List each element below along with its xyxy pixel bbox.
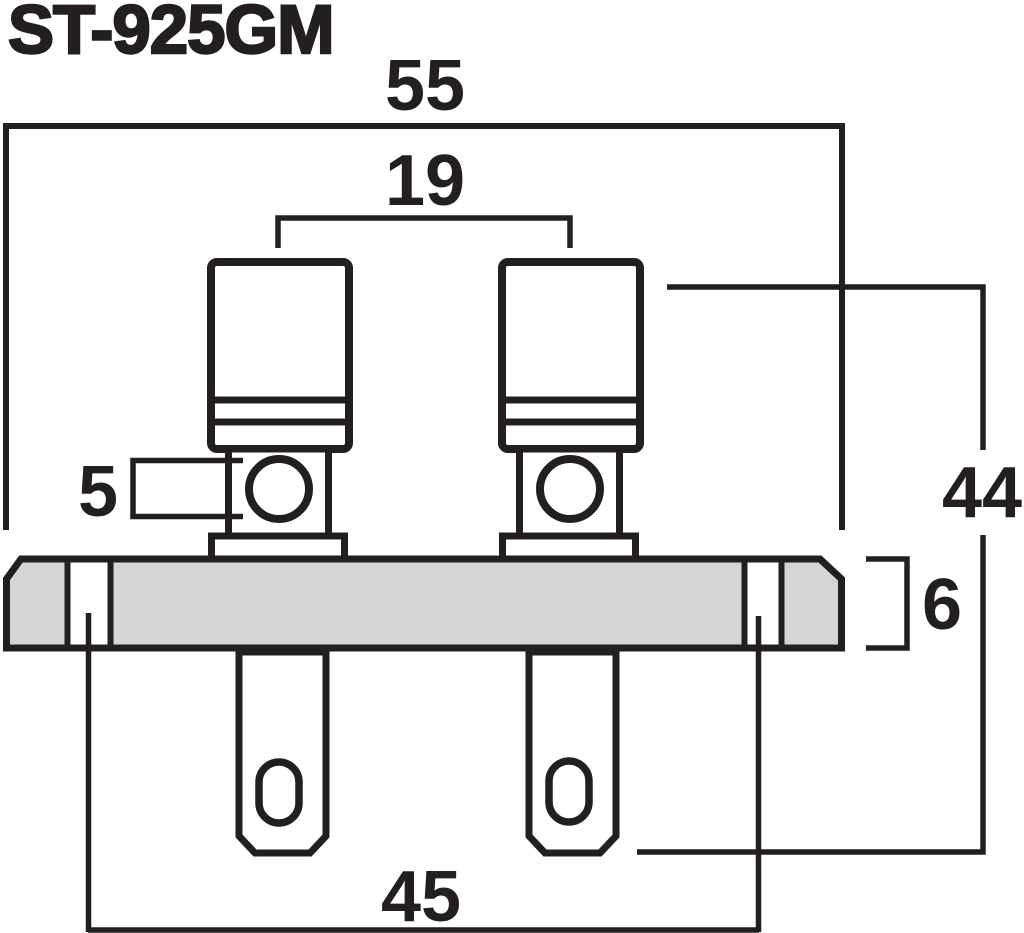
dimension-label-55: 55 [385,46,465,126]
dimension-line-6 [866,559,907,648]
technical-drawing: ST-925GM 55 19 [0,0,1024,933]
dimension-line-19 [278,218,570,248]
dimension-plate-thickness: 6 [866,559,962,648]
drawing-title: ST-925GM [8,0,334,68]
dimension-label-45: 45 [381,857,461,933]
plate-slot-right [748,563,782,645]
dimension-post-spacing: 19 [278,141,570,248]
post-wire-hole [249,459,309,519]
solder-lug-left [239,652,326,853]
dimension-label-44: 44 [942,453,1022,533]
drawing-canvas: ST-925GM 55 19 [0,0,1024,933]
solder-lug-right [529,652,616,853]
lug-hole [549,761,589,822]
plate-outline [7,559,842,648]
dimension-mounting-hole-spacing: 45 [88,857,759,933]
dimension-label-5: 5 [78,452,118,532]
dimension-label-6: 6 [922,565,962,645]
mounting-plate [7,559,842,648]
dimension-label-19: 19 [385,141,465,221]
lug-hole [259,762,299,823]
dimension-terminal-hole: 5 [78,452,243,532]
post-wire-hole [540,459,600,519]
binding-post-right [498,262,644,560]
